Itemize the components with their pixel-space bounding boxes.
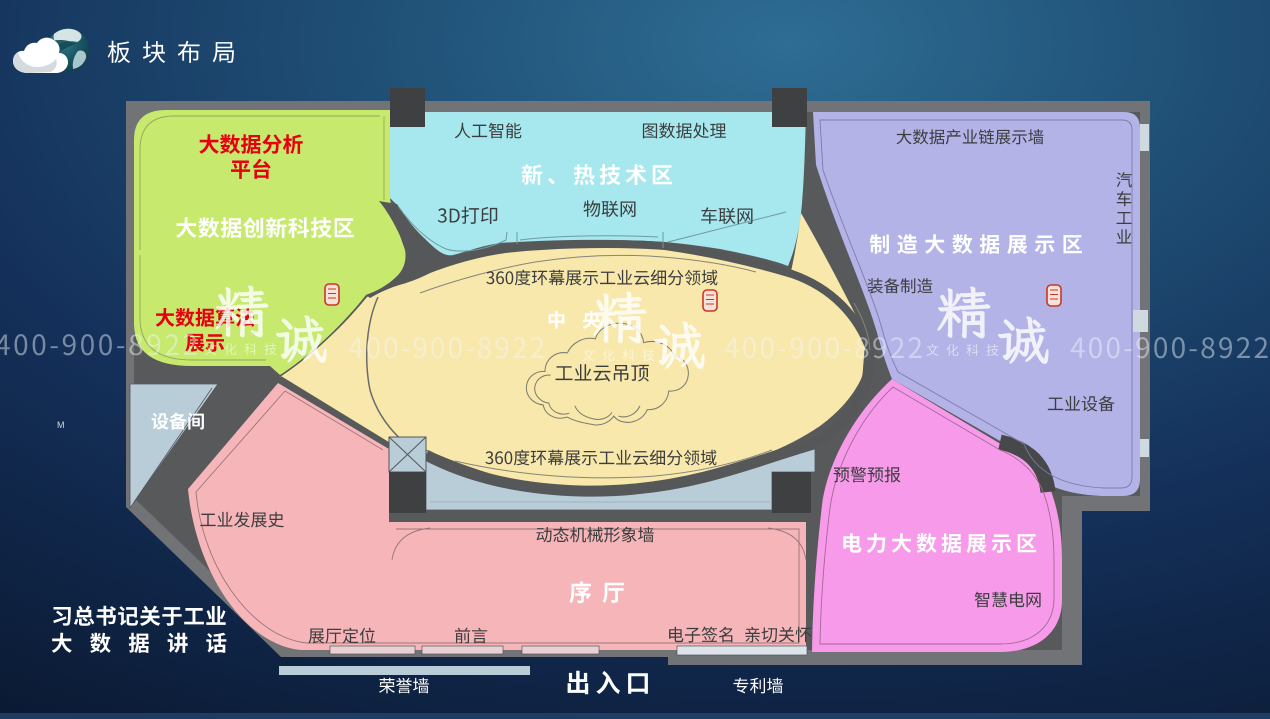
svg-text:M: M [57,420,65,430]
